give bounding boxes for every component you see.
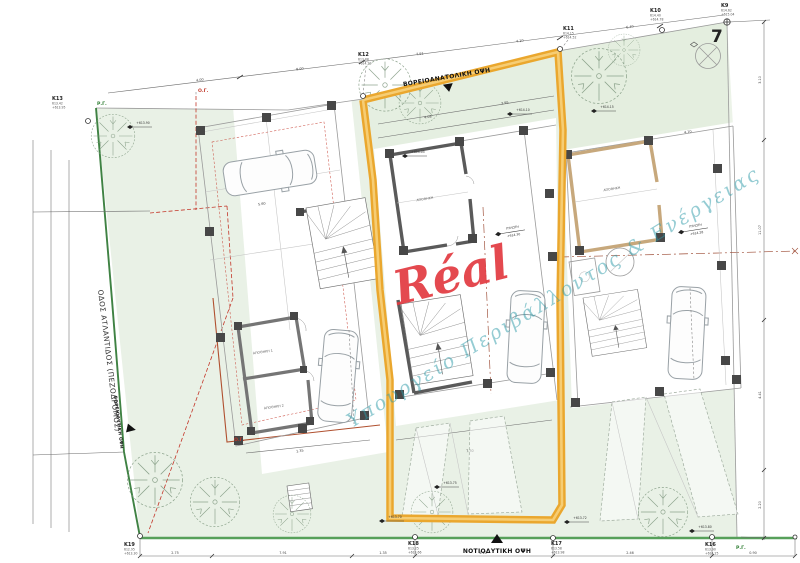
rg-label-left: Ρ.Γ. bbox=[97, 101, 107, 107]
svg-text:+614.20: +614.20 bbox=[358, 61, 371, 65]
site-plan-canvas: 4.00 8.00 7.91 4.10 6.40 2.75 7.91 1.35 … bbox=[0, 0, 800, 563]
view-label-sw: ΝΟΤΙΟΔΥΤΙΚΗ ΟΨΗ bbox=[463, 548, 531, 555]
dim-bottom-2: 7.91 bbox=[279, 551, 287, 555]
spot-7: +613.72 bbox=[573, 516, 586, 520]
dim-right-4: 2.20 bbox=[758, 501, 762, 509]
svg-text:+613.95: +613.95 bbox=[52, 105, 65, 109]
spot-3: +614.10 bbox=[516, 108, 529, 112]
spot-1: +613.90 bbox=[136, 121, 149, 125]
dim-right-3: 4.41 bbox=[758, 391, 762, 399]
og-label-top: Ο.Γ. bbox=[198, 88, 209, 94]
svg-text:+613.66: +613.66 bbox=[408, 550, 421, 554]
entrance-steps bbox=[287, 483, 312, 512]
spot-6: +613.70 bbox=[388, 515, 401, 519]
svg-text:+614.78: +614.78 bbox=[650, 17, 663, 21]
svg-text:+614.52: +614.52 bbox=[563, 35, 576, 39]
dim-bottom-6: 0.90 bbox=[749, 551, 757, 555]
dim-right-1: 3.10 bbox=[758, 76, 762, 84]
dim-right-2: 11.07 bbox=[758, 225, 762, 235]
dim-bottom-3: 1.35 bbox=[379, 551, 387, 555]
plot-number: 7 bbox=[711, 27, 723, 47]
rg-label-right: Ρ.Γ. bbox=[736, 545, 746, 551]
svg-text:+615.04: +615.04 bbox=[721, 12, 734, 16]
svg-text:+613.30: +613.30 bbox=[124, 551, 137, 555]
dim-bottom-1: 2.75 bbox=[171, 551, 179, 555]
staircase-right-building bbox=[583, 289, 647, 356]
spot-4: +614.15 bbox=[600, 105, 613, 109]
spot-8: +613.80 bbox=[698, 525, 711, 529]
architectural-site-plan: 4.00 8.00 7.91 4.10 6.40 2.75 7.91 1.35 … bbox=[0, 0, 800, 563]
dim-bottom-5: 2.46 bbox=[626, 551, 634, 555]
spot-5: +613.75 bbox=[443, 481, 456, 485]
svg-text:+614.25: +614.25 bbox=[705, 551, 718, 555]
og-label-bottom: Ο.Γ. bbox=[234, 437, 245, 443]
svg-text:+613.98: +613.98 bbox=[551, 550, 564, 554]
spot-2: +614.05 bbox=[411, 150, 424, 154]
